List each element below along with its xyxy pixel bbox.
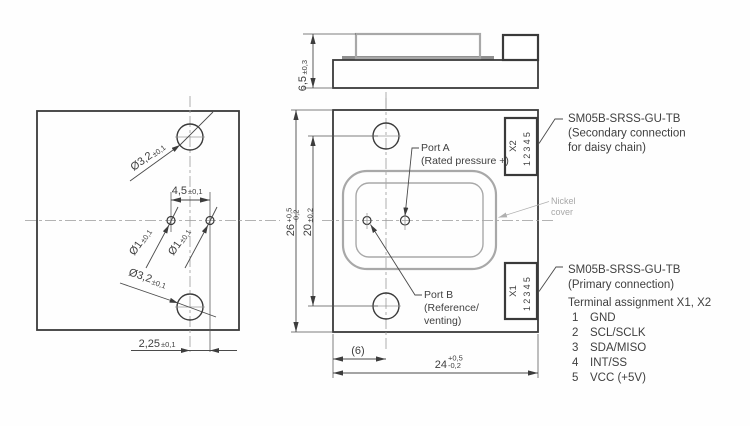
terminal-title: Terminal assignment X1, X2 xyxy=(568,297,711,309)
dim-d1-left-tol: ±0,1 xyxy=(138,228,154,245)
terminal-pin-num: 2 xyxy=(572,327,578,339)
dim-hole-large-top: Ø3,2 ±0,1 xyxy=(128,112,213,181)
secondary-note-leader xyxy=(539,119,563,144)
terminal-pin-row: 2 SCL/SCLK xyxy=(572,327,646,339)
dim-65-value: 6,5 xyxy=(297,76,309,91)
dim-ref-offset: (6) xyxy=(333,334,386,366)
technical-drawing-page: Ø3,2 ±0,1 Ø1 ±0,1 Ø1 ±0,1 xyxy=(0,0,750,426)
secondary-note-line2: (Secondary connection xyxy=(568,128,686,140)
nickel-cover-label-2: cover xyxy=(551,207,573,217)
connector-x2-label: X2 xyxy=(508,140,519,152)
secondary-note-line3: for daisy chain) xyxy=(568,142,646,154)
nickel-cover-label-1: Nickel xyxy=(551,196,576,206)
dim-24-tol-minus: -0,2 xyxy=(448,361,461,370)
dim-225-value: 2,25 xyxy=(139,338,160,350)
dim-d32-bottom-value: Ø3,2 xyxy=(127,266,153,285)
connector-x1-label: X1 xyxy=(508,285,519,297)
side-view: 6,5 ±0,3 xyxy=(297,34,538,108)
dim-45-tol: ±0,1 xyxy=(188,187,203,196)
connector-x1-pin-numbers: 12345 xyxy=(522,275,532,311)
annotations: SM05B-SRSS-GU-TB (Secondary connection f… xyxy=(539,113,711,384)
side-view-connector-block xyxy=(503,35,538,60)
port-a-label: Port A xyxy=(421,142,450,154)
left-view: Ø3,2 ±0,1 Ø1 ±0,1 Ø1 ±0,1 xyxy=(25,96,280,353)
terminal-pin-label: INT/SS xyxy=(590,357,627,369)
terminal-pin-num: 4 xyxy=(572,357,579,369)
nickel-cover-callout: Nickel cover xyxy=(499,196,576,218)
terminal-pin-label: VCC (+5V) xyxy=(590,372,646,384)
dim-total-height: 6,5 ±0,3 xyxy=(297,34,356,91)
terminal-pin-label: GND xyxy=(590,312,616,324)
port-b-sublabel-2: venting) xyxy=(424,315,461,327)
dim-20-tol: ±0,2 xyxy=(306,208,315,223)
terminal-pin-label: SDA/MISO xyxy=(590,342,646,354)
dim-225-tol: ±0,1 xyxy=(161,340,176,349)
terminal-pin-row: 4 INT/SS xyxy=(572,357,627,369)
dim-65-tol: ±0,3 xyxy=(300,60,309,75)
dim-port-spacing: 4,5 ±0,1 xyxy=(171,185,210,200)
nickel-cover-outer-outline xyxy=(343,171,496,269)
port-b-sublabel-1: (Reference/ xyxy=(424,302,479,314)
port-b-label: Port B xyxy=(424,289,453,301)
port-b-callout: Port B (Reference/ venting) xyxy=(371,225,479,328)
connector-x2-pin-numbers: 12345 xyxy=(522,130,532,166)
terminal-pin-row: 1 GND xyxy=(572,312,616,324)
dim-24-value: 24 xyxy=(435,359,447,371)
dim-d1-right-tol: ±0,1 xyxy=(177,228,193,245)
dim-d32-bottom-tol: ±0,1 xyxy=(151,277,168,290)
terminal-assignment: Terminal assignment X1, X2 1 GND 2 SCL/S… xyxy=(568,297,711,384)
drawing-canvas: Ø3,2 ±0,1 Ø1 ±0,1 Ø1 ±0,1 xyxy=(0,0,750,426)
terminal-pin-label: SCL/SCLK xyxy=(590,327,646,339)
secondary-note-line1: SM05B-SRSS-GU-TB xyxy=(568,113,681,125)
nickel-cover-inner-outline xyxy=(356,183,483,257)
dim-26-value: 26 xyxy=(285,224,297,236)
primary-note-line2: (Primary connection) xyxy=(568,279,674,291)
side-view-base-plate xyxy=(333,60,538,88)
dim-45-value: 4,5 xyxy=(172,185,187,197)
dim-20-value: 20 xyxy=(302,224,314,236)
port-a-sublabel: (Rated pressure +) xyxy=(421,155,509,167)
terminal-pin-row: 3 SDA/MISO xyxy=(572,342,646,354)
terminal-pin-row: 5 VCC (+5V) xyxy=(572,372,646,384)
primary-note-leader xyxy=(539,267,563,292)
dim-6-value: (6) xyxy=(351,345,364,357)
dim-hole-large-bottom: Ø3,2 ±0,1 xyxy=(120,266,216,317)
dim-d32-top-tol: ±0,1 xyxy=(150,143,167,159)
port-a-callout: Port A (Rated pressure +) xyxy=(405,142,509,216)
terminal-pin-num: 3 xyxy=(572,342,578,354)
terminal-pin-num: 1 xyxy=(572,312,578,324)
side-view-nickel-cover xyxy=(356,34,480,58)
terminal-pin-num: 5 xyxy=(572,372,578,384)
primary-note-line1: SM05B-SRSS-GU-TB xyxy=(568,264,681,276)
dim-26-tol-minus: -0,2 xyxy=(292,210,301,223)
front-view: X2 12345 X1 12345 26 +0,5 -0,2 xyxy=(285,98,576,378)
dim-port-offset: 2,25 ±0,1 xyxy=(131,338,237,353)
